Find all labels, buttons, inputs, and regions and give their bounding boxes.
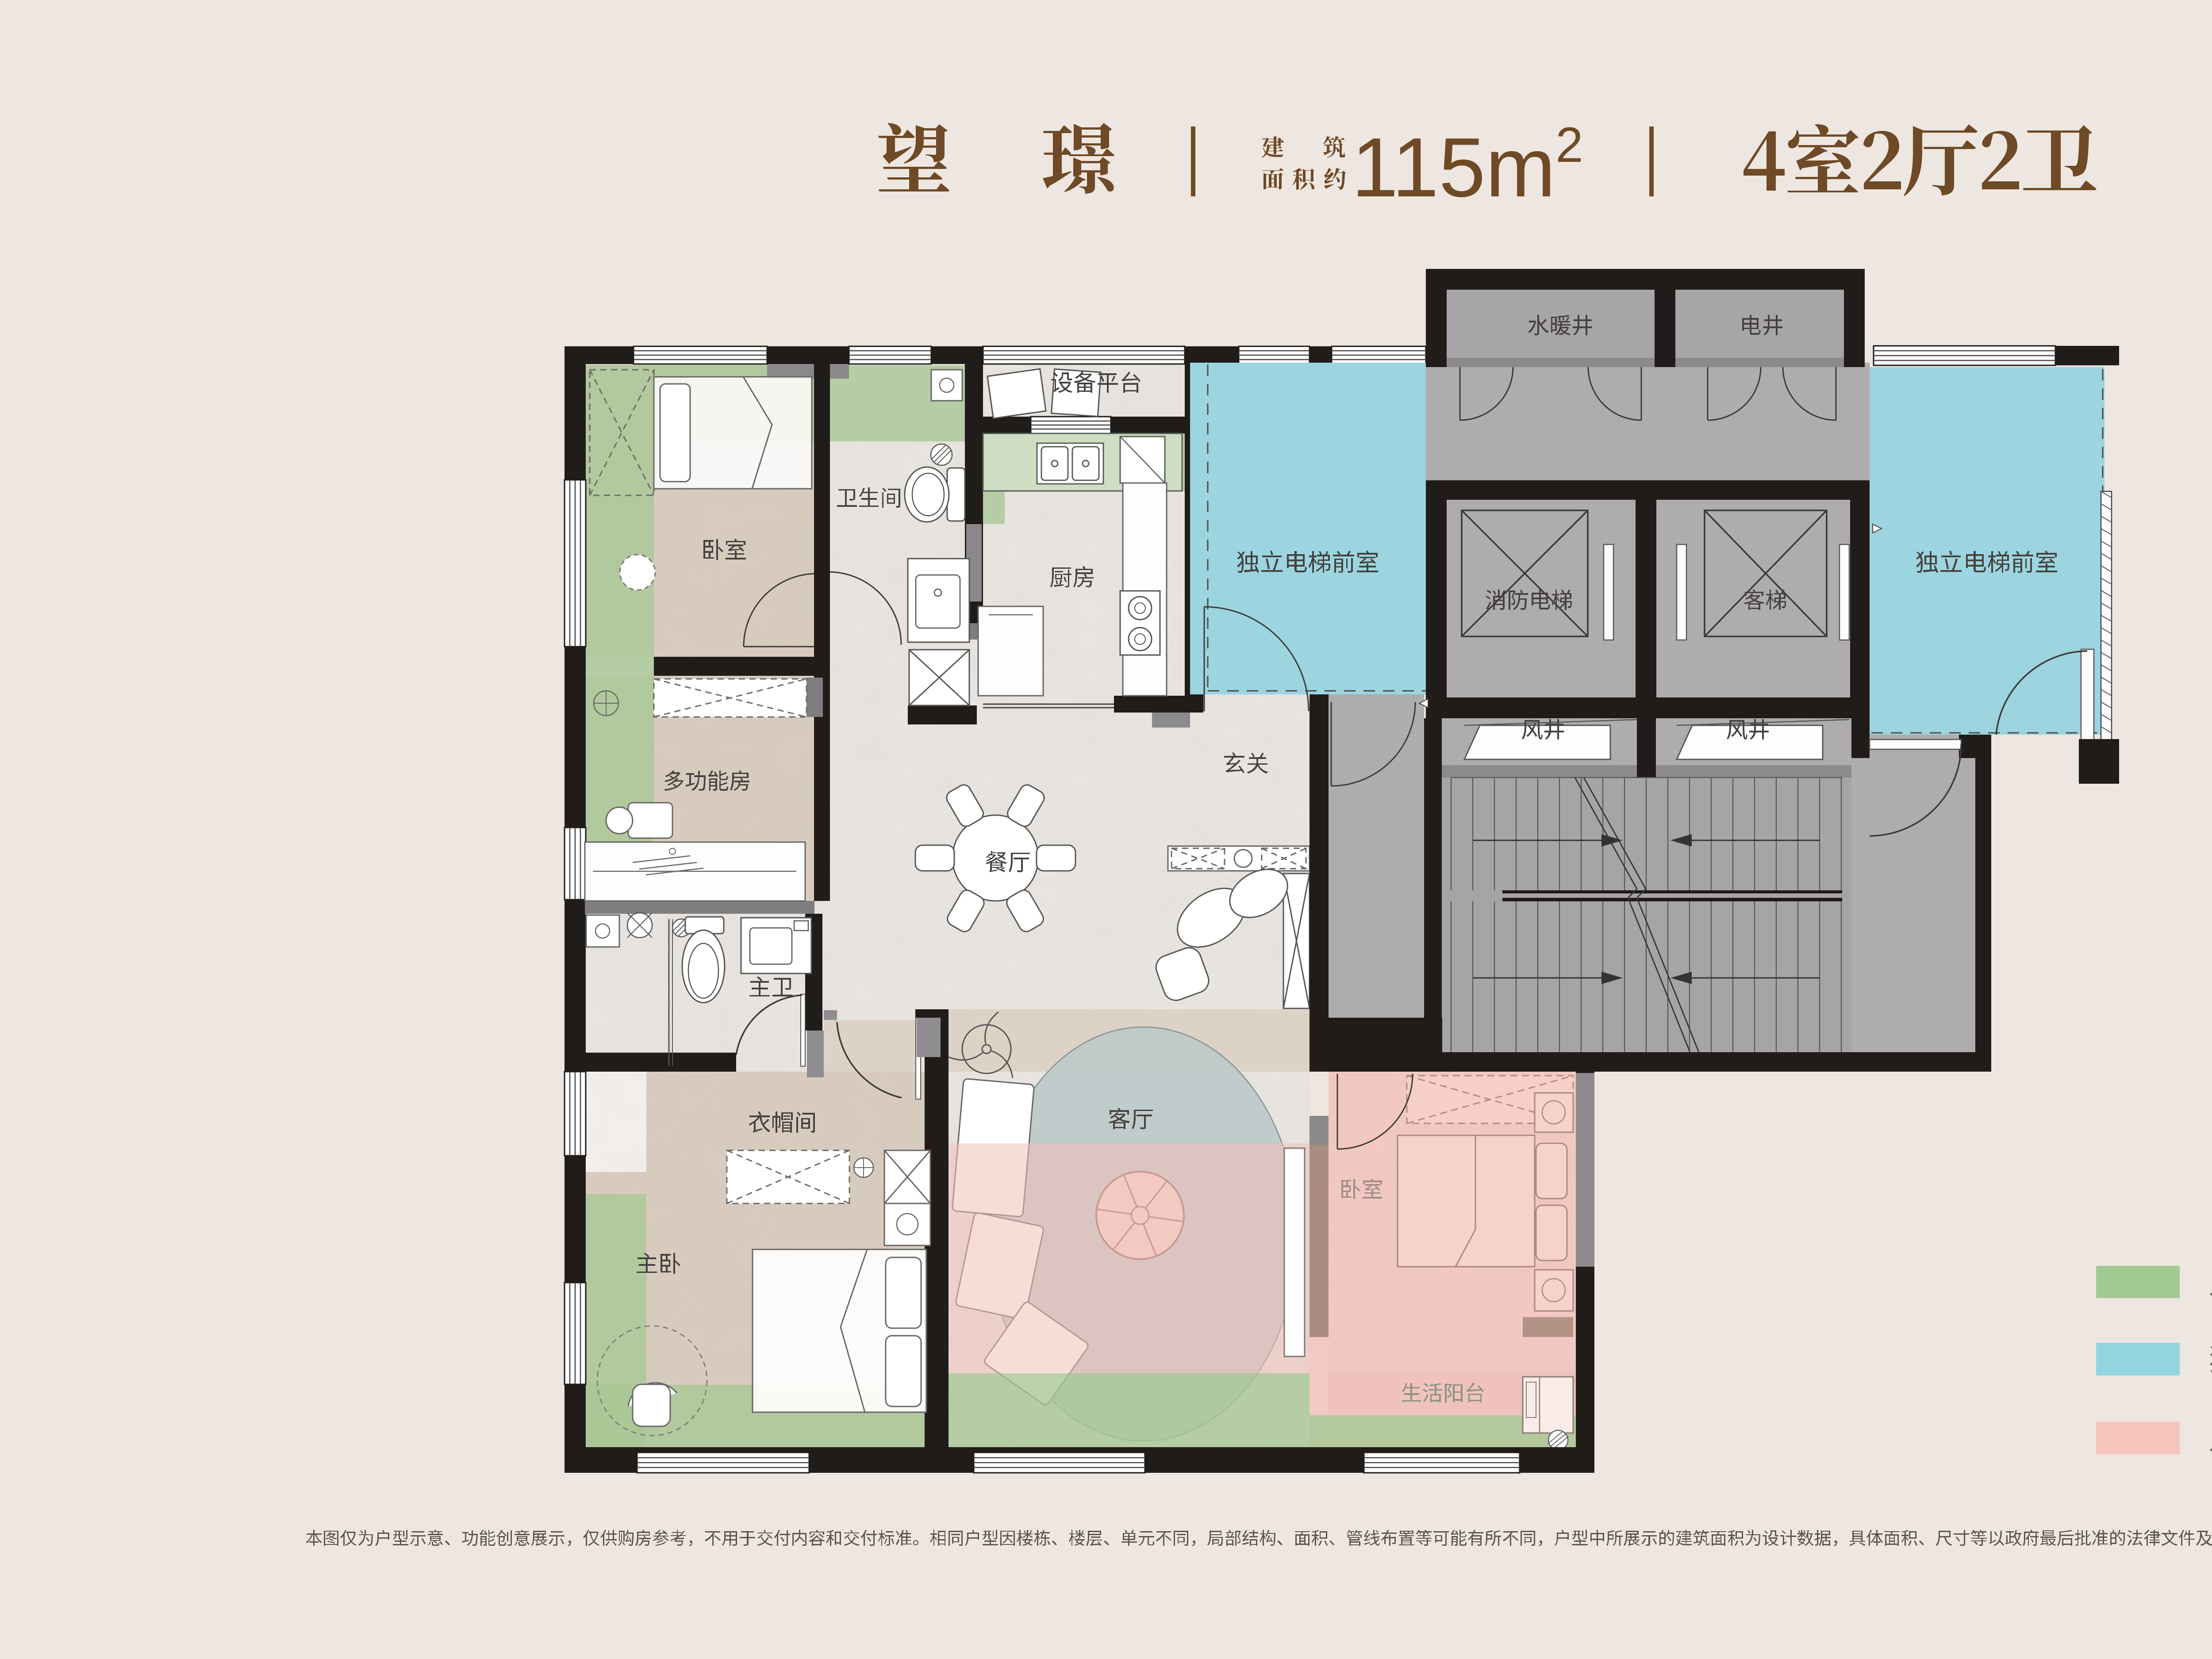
svg-text:115m2: 115m2 — [1352, 117, 1583, 215]
